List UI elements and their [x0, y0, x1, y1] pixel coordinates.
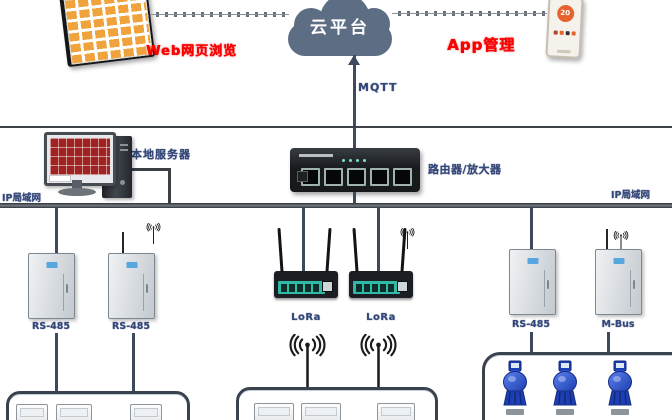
meter-cabinet-4 — [595, 249, 642, 315]
web-dashboard-display — [59, 0, 156, 67]
router-antenna — [325, 228, 331, 272]
lora-label-1: LoRa — [284, 312, 328, 323]
network-architecture-diagram: 云平台 20 Web网页浏览 App管理 MQTT 本地服务器 路由器/放大器 — [0, 0, 672, 420]
valve-device — [605, 360, 635, 408]
cloud-platform-label: 云平台 — [288, 13, 392, 38]
gateway-brand-mark — [299, 154, 333, 157]
gateway-led-row — [342, 159, 366, 162]
cabinet-label-2: RS-485 — [98, 321, 164, 332]
server-connector-v — [168, 168, 171, 206]
lora-router-1 — [274, 271, 338, 298]
phone-home-bar — [556, 50, 570, 54]
meter-cabinet-3 — [509, 249, 556, 315]
iot-gateway — [290, 148, 420, 192]
section-divider-line — [0, 126, 672, 128]
cabinet-2-meter-line — [132, 333, 135, 393]
router-wan-port — [397, 281, 408, 292]
monitor-screen — [47, 135, 113, 183]
router-antenna — [277, 228, 283, 272]
cabinet-badge — [527, 258, 538, 264]
wireless-antenna-icon — [146, 223, 161, 244]
router-antenna — [352, 228, 358, 272]
cabinet-4-antenna — [606, 229, 608, 250]
meter-cabinet-2 — [108, 253, 155, 319]
gateway-power-port — [297, 171, 308, 182]
lora-router-2 — [349, 271, 413, 298]
meter-box — [130, 404, 162, 420]
local-server-label: 本地服务器 — [131, 146, 191, 162]
router-wan-port — [322, 281, 333, 292]
drop-line-cabinet-1 — [55, 207, 58, 254]
drop-line-router-2 — [377, 207, 380, 272]
router-port-strip — [278, 281, 325, 294]
valve-device — [500, 360, 530, 408]
lora-label-2: LoRa — [359, 312, 403, 323]
web-browse-label: Web网页浏览 — [146, 40, 237, 59]
drop-line-cabinet-3 — [530, 207, 533, 250]
valve-device — [550, 360, 580, 408]
meter-cabinet-1 — [28, 253, 75, 319]
monitor-base — [58, 188, 96, 196]
lan-label-left: IP局域网 — [2, 190, 41, 204]
meter-box — [56, 404, 92, 420]
server-monitor — [44, 132, 116, 186]
meter-box — [254, 403, 294, 420]
antenna-icon — [359, 334, 398, 389]
app-manage-label: App管理 — [447, 34, 515, 55]
valve-pad — [506, 409, 524, 415]
gateway-ethernet-ports — [301, 168, 412, 186]
valve-pad — [611, 409, 629, 415]
lan-label-right: IP局域网 — [611, 187, 650, 201]
server-connector-h — [132, 168, 171, 171]
cabinet-2-antenna — [122, 232, 124, 254]
mqtt-arrow-icon — [348, 55, 360, 65]
cabinet-badge — [126, 262, 137, 268]
cloud-platform-shape: 云平台 — [288, 0, 392, 58]
antenna-icon — [288, 334, 327, 389]
monitor-taskbar — [49, 175, 71, 182]
lan-bus-line — [0, 203, 672, 208]
cabinet-badge — [46, 262, 57, 268]
dashed-link-cloud-app — [392, 11, 547, 16]
meter-box — [16, 404, 48, 420]
meter-box — [301, 403, 341, 420]
cabinet-label-3: RS-485 — [498, 319, 564, 330]
cabinet-label-4: M-Bus — [585, 319, 651, 330]
valve-pad — [556, 409, 574, 415]
cabinet-badge — [613, 258, 624, 264]
gateway-label: 路由器/放大器 — [428, 161, 502, 177]
dashboard-screen — [63, 0, 153, 65]
monitor-app-content — [49, 137, 111, 176]
phone-device: 20 — [545, 0, 583, 59]
cabinet-1-meter-line — [55, 333, 58, 393]
router-port-strip — [353, 281, 400, 294]
phone-badge: 20 — [556, 5, 574, 23]
drop-line-router-1 — [302, 207, 305, 272]
meter-box — [377, 403, 415, 420]
cabinet-label-1: RS-485 — [18, 321, 84, 332]
mqtt-link-line — [353, 55, 356, 150]
mqtt-label: MQTT — [358, 81, 398, 94]
phone-app-dots — [553, 30, 575, 35]
dashed-link-web-cloud — [150, 12, 289, 17]
